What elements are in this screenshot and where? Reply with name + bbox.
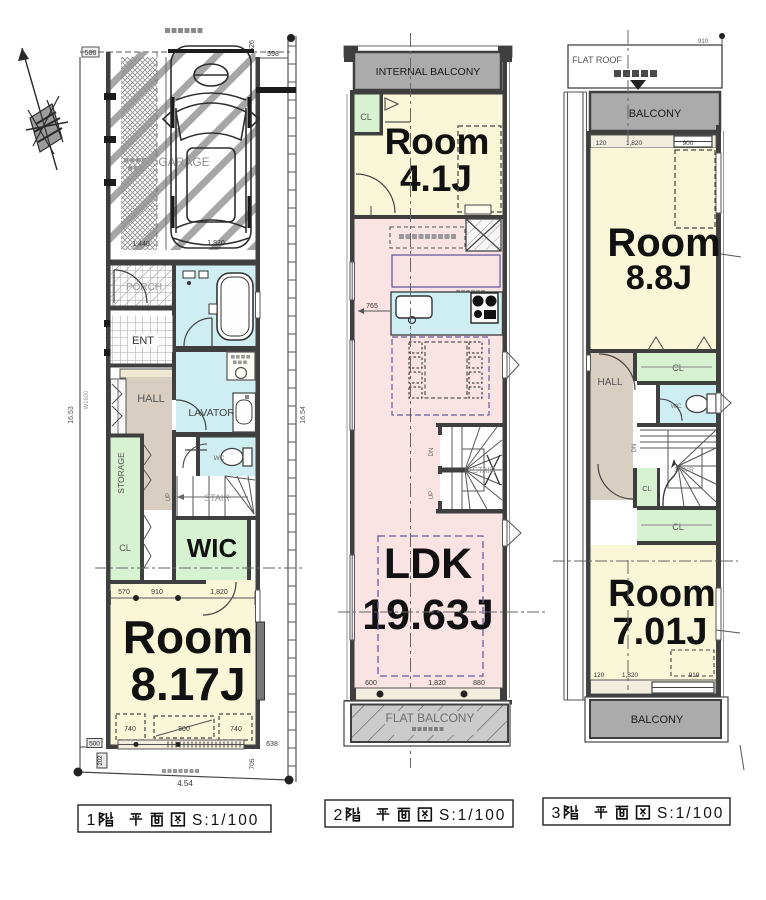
svg-text:HALL: HALL bbox=[137, 393, 165, 405]
svg-text:900: 900 bbox=[683, 140, 694, 147]
svg-text:STORAGE: STORAGE bbox=[116, 452, 126, 494]
svg-text:STAIR: STAIR bbox=[473, 466, 496, 475]
svg-text:880: 880 bbox=[473, 680, 485, 687]
svg-text:202: 202 bbox=[98, 755, 104, 766]
svg-text:LDK: LDK bbox=[384, 540, 472, 588]
svg-text:705: 705 bbox=[249, 758, 256, 769]
svg-text:910: 910 bbox=[151, 589, 163, 596]
svg-text:ENT: ENT bbox=[132, 335, 154, 347]
svg-text:7.01J: 7.01J bbox=[612, 611, 707, 653]
svg-text:CL: CL bbox=[119, 543, 131, 553]
svg-text:S:1/100: S:1/100 bbox=[657, 805, 724, 822]
svg-text:BALCONY: BALCONY bbox=[629, 108, 682, 120]
svg-text:600: 600 bbox=[365, 680, 377, 687]
svg-text:UP: UP bbox=[166, 493, 172, 501]
svg-text:120: 120 bbox=[596, 140, 607, 147]
svg-text:910: 910 bbox=[698, 39, 709, 45]
svg-text:PORCH: PORCH bbox=[126, 282, 162, 293]
svg-text:1,820: 1,820 bbox=[428, 680, 446, 687]
svg-text:1,440: 1,440 bbox=[132, 241, 150, 248]
svg-text:19.63J: 19.63J bbox=[362, 591, 494, 639]
svg-text:FLAT BALCONY: FLAT BALCONY bbox=[386, 711, 475, 725]
svg-text:500: 500 bbox=[89, 741, 100, 748]
svg-text:638: 638 bbox=[266, 741, 278, 748]
svg-text:8.8J: 8.8J bbox=[626, 259, 692, 297]
svg-text:1: 1 bbox=[87, 812, 96, 829]
svg-text:Room: Room bbox=[385, 121, 490, 162]
svg-text:120: 120 bbox=[594, 672, 605, 679]
svg-text:16.54: 16.54 bbox=[300, 406, 307, 424]
svg-text:1,820: 1,820 bbox=[207, 240, 225, 247]
svg-text:1,820: 1,820 bbox=[210, 589, 228, 596]
svg-text:S:1/100: S:1/100 bbox=[439, 807, 506, 824]
svg-text:STAIR: STAIR bbox=[204, 493, 230, 503]
svg-text:Room: Room bbox=[123, 611, 253, 663]
svg-text:FLAT ROOF: FLAT ROOF bbox=[572, 55, 622, 65]
svg-text:2: 2 bbox=[334, 807, 343, 824]
svg-text:3: 3 bbox=[552, 805, 561, 822]
svg-text:UP: UP bbox=[429, 491, 435, 499]
svg-text:765: 765 bbox=[366, 303, 378, 310]
svg-text:W1600: W1600 bbox=[84, 390, 90, 410]
svg-text:S:1/100: S:1/100 bbox=[192, 812, 259, 829]
svg-text:740: 740 bbox=[230, 726, 242, 733]
svg-text:WC: WC bbox=[214, 455, 225, 462]
svg-text:CL: CL bbox=[360, 112, 372, 122]
svg-text:WIC: WIC bbox=[187, 533, 238, 563]
svg-text:Room: Room bbox=[608, 573, 716, 615]
svg-text:16.53: 16.53 bbox=[68, 406, 75, 424]
svg-text:CL: CL bbox=[642, 484, 652, 493]
svg-text:BALCONY: BALCONY bbox=[631, 714, 684, 726]
svg-text:570: 570 bbox=[118, 589, 130, 596]
svg-text:CL: CL bbox=[672, 363, 684, 373]
svg-text:CL: CL bbox=[672, 522, 684, 532]
svg-text:DN: DN bbox=[632, 444, 638, 453]
svg-text:500: 500 bbox=[85, 50, 97, 57]
svg-text:DN: DN bbox=[429, 448, 435, 457]
svg-text:4.54: 4.54 bbox=[177, 779, 193, 788]
svg-text:HALL: HALL bbox=[597, 377, 622, 388]
svg-text:1,820: 1,820 bbox=[622, 672, 639, 679]
svg-text:598: 598 bbox=[267, 51, 279, 58]
svg-text:8.17J: 8.17J bbox=[130, 658, 245, 710]
svg-text:INTERNAL BALCONY: INTERNAL BALCONY bbox=[376, 66, 481, 78]
svg-text:910: 910 bbox=[689, 672, 700, 679]
svg-text:740: 740 bbox=[124, 726, 136, 733]
